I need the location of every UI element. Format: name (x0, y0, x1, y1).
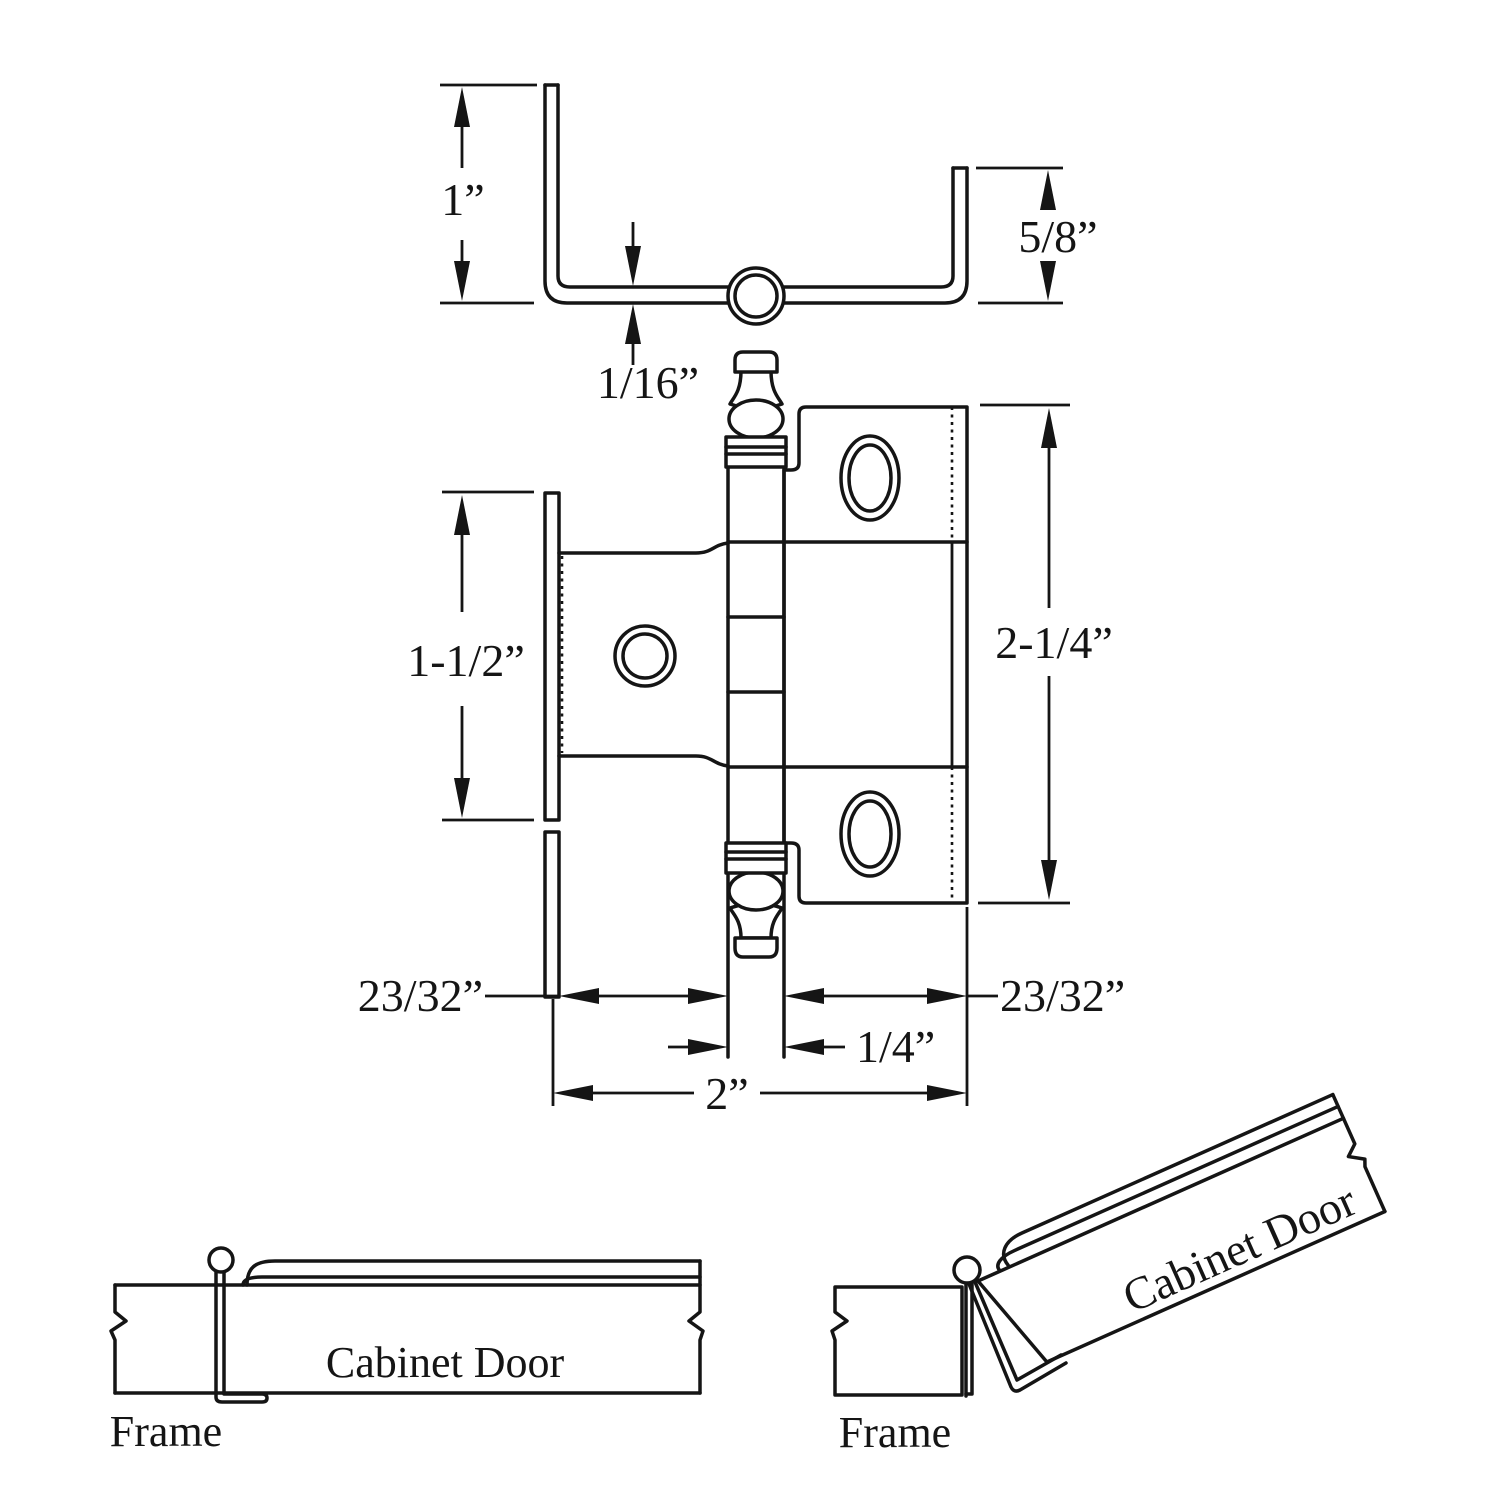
finial-cap (735, 352, 777, 372)
dim-right-leg-label: 5/8” (1018, 211, 1097, 262)
dim-right-leaf-height: 2-1/4” (978, 405, 1113, 903)
dim-right-leaf-label: 2-1/4” (995, 617, 1113, 668)
finial-ball (729, 872, 783, 910)
dim-left-leaf-height: 1-1/2” (407, 492, 534, 820)
hinge-technical-drawing: 1” 5/8” 1/16” (0, 0, 1500, 1500)
bottom-finial (726, 843, 786, 957)
right-leaf-outline (784, 407, 967, 903)
door-flange-strip-lower (545, 832, 559, 997)
front-view: 1-1/2” 2-1/4” 23/32” 23/32” (358, 352, 1125, 1119)
dim-thickness: 1/16” (597, 222, 699, 408)
arrowhead-down (1040, 261, 1056, 301)
hinge-barrel-closed (209, 1248, 233, 1272)
arrowhead-left (784, 988, 824, 1004)
dim-offset-right: 23/32” (784, 970, 1125, 1021)
finial-ball (729, 400, 783, 438)
arrowhead-down (1041, 860, 1057, 900)
hinge-technical-drawing-page: 1” 5/8” 1/16” (0, 0, 1500, 1500)
arrowhead-up (454, 495, 470, 535)
dim-thickness-label: 1/16” (597, 357, 699, 408)
finial-cap (735, 938, 777, 957)
left-leaf-bottom-edge (559, 756, 728, 766)
closed-position-diagram: Cabinet Door Frame (110, 1248, 703, 1456)
arrowhead-left (559, 988, 599, 1004)
arrowhead-down (625, 246, 641, 286)
arrowhead-left (553, 1085, 593, 1101)
dim-right-leg: 5/8” (976, 168, 1098, 303)
door-molding-upper (247, 1261, 700, 1285)
finial-collar (726, 437, 786, 467)
arrowhead-up (625, 304, 641, 344)
arrowhead-down (454, 778, 470, 818)
frame-break-edge (111, 1285, 126, 1393)
door-break-edge (689, 1261, 703, 1393)
arrowhead-right (688, 1039, 728, 1055)
door-near-edge (978, 1269, 1047, 1374)
dim-total-width-label: 2” (705, 1068, 748, 1119)
dim-offset-right-label: 23/32” (1000, 970, 1125, 1021)
arrowhead-up (1040, 170, 1056, 210)
channel-inner-line (558, 85, 953, 287)
arrowhead-left (784, 1039, 824, 1055)
hinge-barrel-open (954, 1257, 980, 1283)
dim-left-leg-label: 1” (441, 174, 484, 225)
cabinet-door-label-closed: Cabinet Door (326, 1338, 565, 1387)
screw-hole-inner (623, 634, 667, 678)
left-leaf-top-edge (559, 543, 728, 553)
dim-barrel-width: 1/4” (668, 1021, 935, 1072)
frame-label-closed: Frame (110, 1407, 222, 1456)
dim-left-leg: 1” (440, 85, 537, 303)
open-door: Cabinet Door (967, 1093, 1387, 1374)
open-position-diagram: Cabinet Door Frame (832, 1093, 1388, 1457)
arrowhead-up (454, 87, 470, 127)
arrowhead-down (454, 261, 470, 301)
frame-block (832, 1287, 962, 1395)
hinge-leaf-closed (216, 1272, 267, 1402)
arrowhead-up (1041, 408, 1057, 448)
arrowhead-right (688, 988, 728, 1004)
dim-offset-left-label: 23/32” (358, 970, 483, 1021)
dim-offset-left: 23/32” (358, 970, 728, 1021)
arrowhead-right (927, 1085, 967, 1101)
frame-label-open: Frame (839, 1408, 951, 1457)
top-finial (726, 352, 786, 467)
arrowhead-right (927, 988, 967, 1004)
dim-left-leaf-label: 1-1/2” (407, 635, 525, 686)
cabinet-door-label-open: Cabinet Door (1115, 1174, 1363, 1322)
dim-barrel-width-label: 1/4” (856, 1021, 935, 1072)
door-flange-strip-upper (545, 493, 559, 820)
